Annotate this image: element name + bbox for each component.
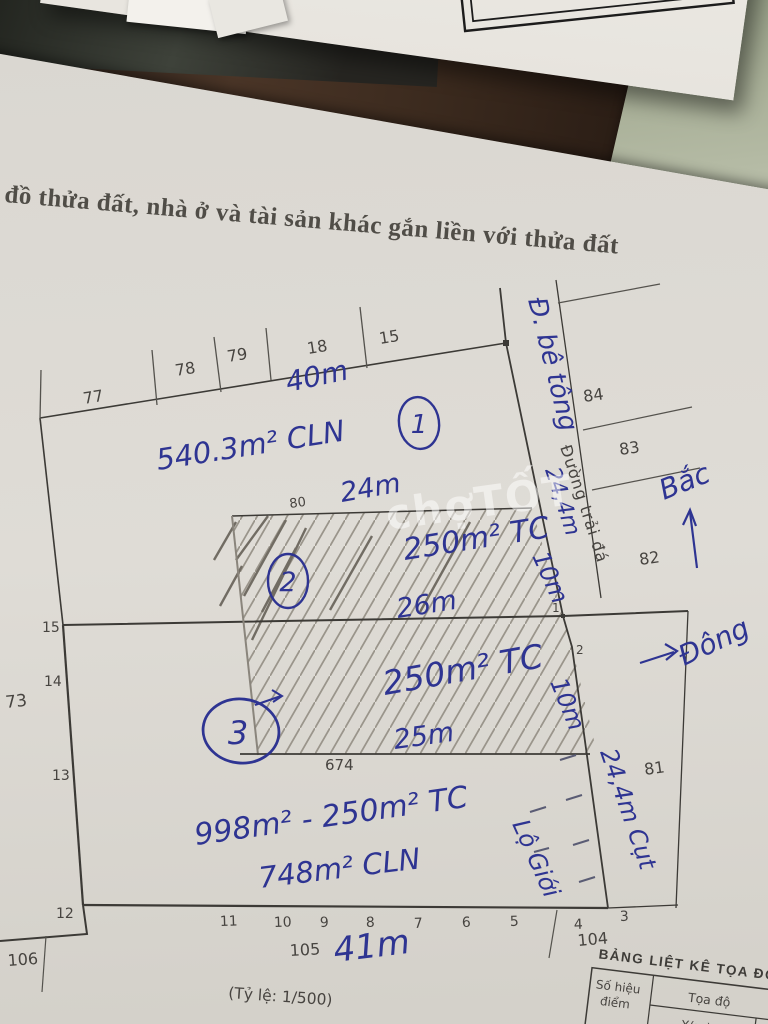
point-15: 15 [42,620,60,636]
point-7: 7 [414,916,423,932]
parcel-81: 81 [643,757,666,779]
parcel-77: 77 [82,386,105,408]
coord-table-title: BẢNG LIỆT KÊ TỌA ĐỘ [598,946,768,983]
circle-plot2-number: 2 [279,567,296,598]
point-5: 5 [510,914,519,930]
point-11: 11 [220,913,238,930]
len-41m: 41m [331,922,412,971]
point-10: 10 [274,914,292,931]
parcel-82: 82 [638,547,661,569]
parcel-78: 78 [174,358,197,380]
north-arrow-head [683,510,696,526]
setback-label: Lộ Giới [507,815,566,902]
len-40m: 40m [283,353,351,398]
parcel-15-top: 15 [378,326,401,348]
parcel-106: 106 [7,949,39,970]
corner-jog-12 [0,905,87,941]
point-4: 4 [574,917,584,933]
point-9: 9 [320,915,329,931]
stacked-paper-frame [455,0,734,31]
parcel-105: 105 [289,939,320,960]
diagram-overlay: đồ thửa đất, nhà ở và tài sản khác gắn l… [0,0,768,1024]
point-14: 14 [44,674,62,690]
point-6: 6 [462,915,472,931]
circle-plot3-number: 3 [228,714,248,752]
top-boundary-line [40,343,506,418]
parcel-79: 79 [226,344,249,366]
scale-note: (Tỷ lệ: 1/500) [228,984,333,1009]
left-edge [63,625,83,905]
upper-left-edge [40,418,63,625]
coordinate-table: BẢNG LIỆT KÊ TỌA ĐỘ Số hiệu điểm Tọa độ … [584,946,768,1024]
parcel-84: 84 [582,384,605,406]
coord-col-coord: Tọa độ [686,990,731,1010]
bottom-edge-extension [608,905,678,908]
document-title: đồ thửa đất, nhà ở và tài sản khác gắn l… [3,181,620,259]
compass-north-label: Bắc [654,456,715,506]
area-plot1: 540.3m² CLN [154,414,347,477]
remainder-calc: 998m² - 250m² TC [192,780,470,853]
bottom-edge [83,905,608,908]
survey-diagram: 77 78 79 18 15 84 83 82 81 73 106 105 10… [0,280,768,1024]
compass-east-label: Đông [673,611,754,672]
coord-col-point-2: điểm [599,994,631,1012]
parcel-18: 18 [306,336,329,358]
point-3: 3 [620,909,629,925]
circle-plot1-number: 1 [411,410,428,440]
label-674: 674 [325,756,354,774]
remainder-result: 748m² CLN [257,841,422,895]
parcel-73: 73 [4,691,28,713]
concrete-road-label: Đ. bê tông [521,294,583,434]
photo-of-cadastral-sketch: đồ thửa đất, nhà ở và tài sản khác gắn l… [0,0,768,1024]
point-2: 2 [576,643,584,657]
parcel-80: 80 [288,495,306,512]
point-12: 12 [56,906,74,922]
parcel-83: 83 [618,437,641,459]
point-13: 13 [52,768,70,784]
coord-col-x: X(m) [680,1017,712,1024]
